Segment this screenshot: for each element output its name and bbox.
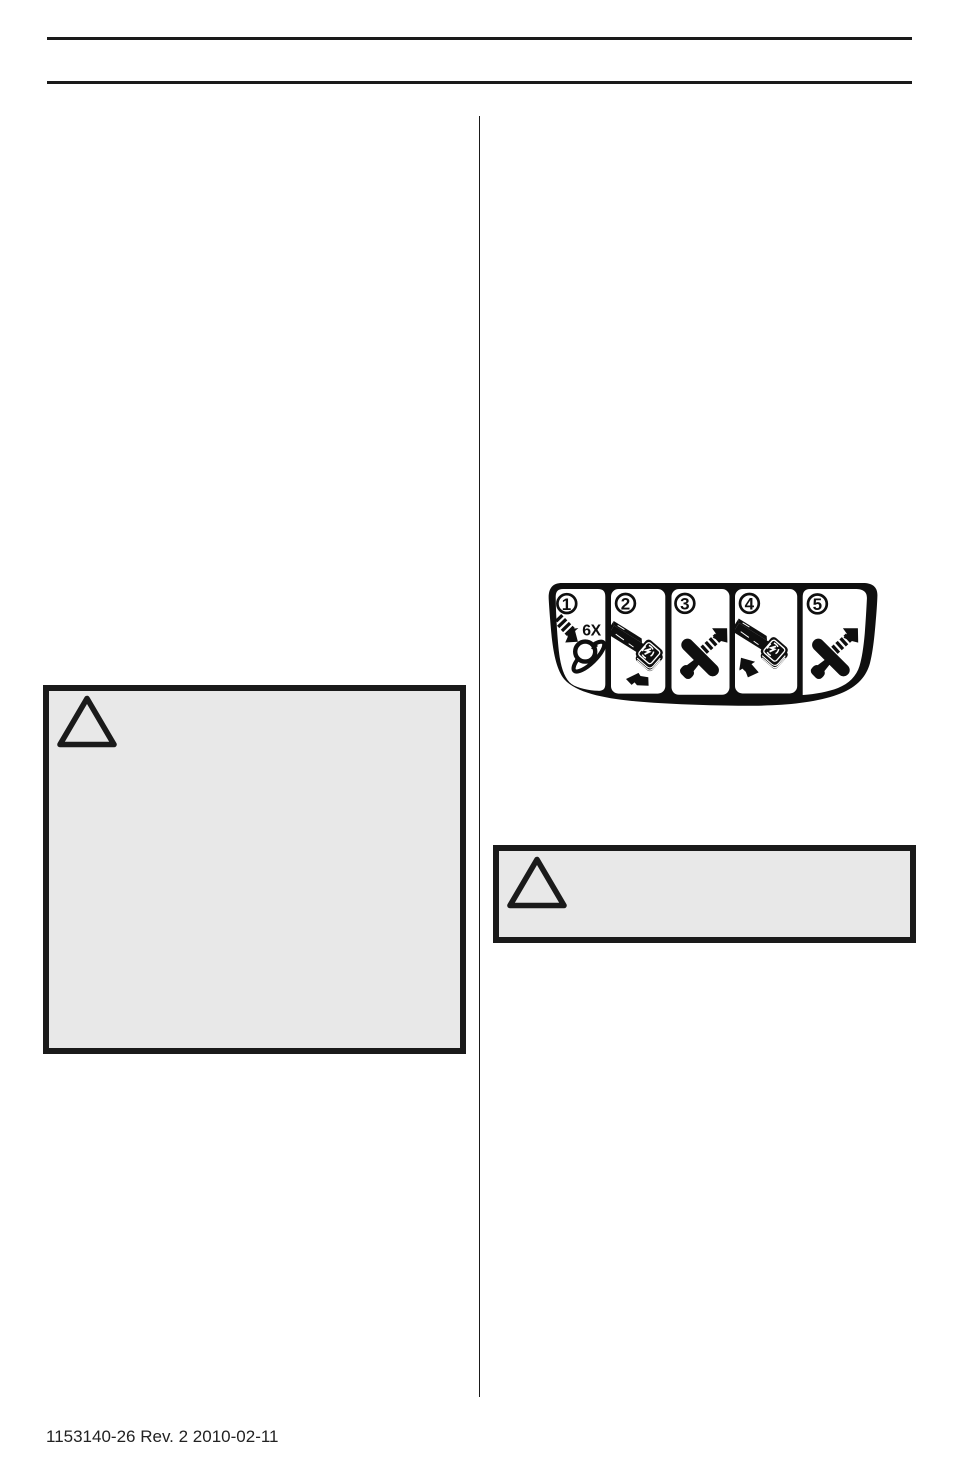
svg-text:2: 2 xyxy=(621,595,630,614)
svg-text:5: 5 xyxy=(813,595,822,614)
svg-text:1: 1 xyxy=(562,595,571,614)
svg-text:3: 3 xyxy=(680,595,689,614)
svg-text:4: 4 xyxy=(745,595,755,614)
svg-text:6X: 6X xyxy=(582,623,601,640)
